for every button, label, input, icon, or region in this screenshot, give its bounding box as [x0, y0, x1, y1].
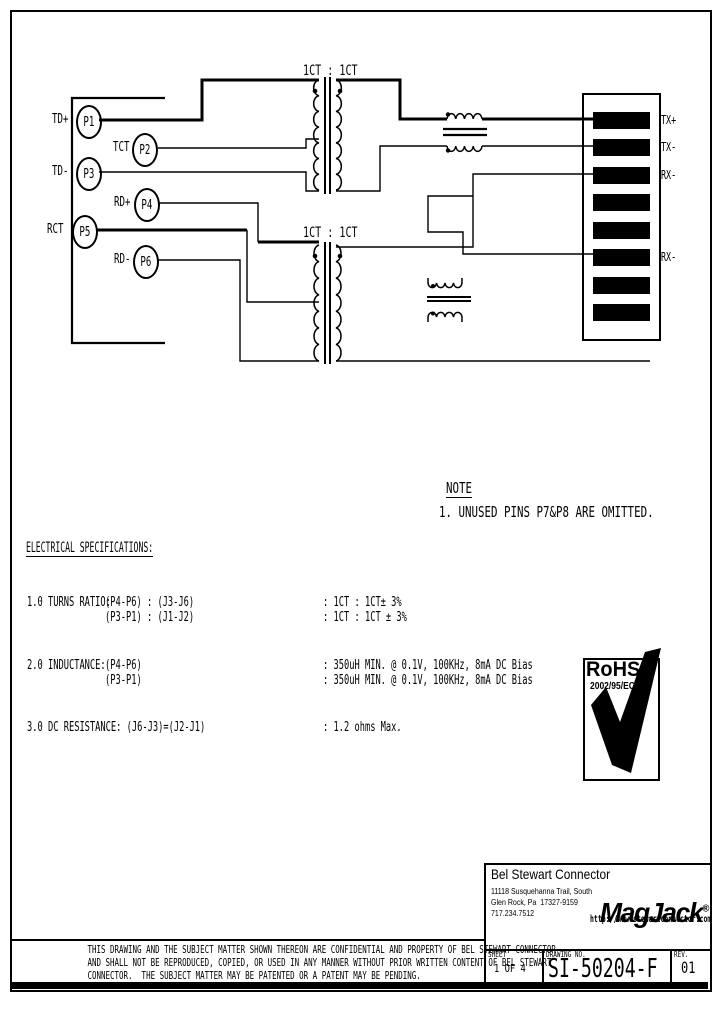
signal-label-rct: RCT	[47, 223, 63, 236]
pin-label-p6: P6	[141, 255, 152, 270]
pin-circle-p3: P3	[76, 157, 102, 191]
pin-label-p3: P3	[84, 167, 95, 182]
connector-pin-label-j6: J6	[637, 250, 649, 264]
signal-label-td-minus: TD-	[52, 165, 68, 178]
signal-label-rd-minus: RD-	[114, 253, 130, 266]
pin-label-p1: P1	[84, 115, 95, 130]
magjack-logo: MagJack®	[576, 871, 708, 955]
note-item-1: 1. UNUSED PINS P7&P8 ARE OMITTED.	[439, 505, 654, 520]
connector-pin-label-j4: J4	[637, 195, 649, 209]
disclaimer-line3: CONNECTOR. THE SUBJECT MATTER MAY BE PAT…	[88, 970, 409, 981]
pin-circle-p2: P2	[132, 133, 158, 167]
connector-pin-label-j8: J8	[637, 305, 649, 319]
drawing-no-value: SI-50204-F	[548, 956, 658, 982]
note-heading: NOTE	[446, 481, 472, 498]
spec-r5-value: : 1.2 ohms Max.	[323, 721, 402, 734]
specs-heading: ELECTRICAL SPECIFICATIONS:	[26, 541, 153, 557]
spec-r3-label: 2.0 INDUCTANCE:	[27, 659, 106, 672]
spec-r3-value: : 350uH MIN. @ 0.1V, 100KHz, 8mA DC Bias	[323, 659, 533, 672]
spec-r1-label: 1.0 TURNS RATIO:	[27, 596, 111, 609]
rohs-directive: 2002/95/EC	[590, 682, 635, 692]
connector-signal-tx-plus: TX+	[661, 114, 676, 126]
spec-r3-pins: (P4-P6)	[105, 659, 142, 672]
pin-circle-p4: P4	[134, 188, 160, 222]
connector-pin-label-j3: J3	[637, 168, 649, 182]
transformer-top-label: 1CT : 1CT	[303, 64, 358, 78]
drawing-sheet: 1CT : 1CT 1CT : 1CT TD+ TCT TD- RD+ RCT …	[0, 0, 720, 1012]
pin-label-p2: P2	[140, 143, 151, 158]
disclaimer-line1: THIS DRAWING AND THE SUBJECT MATTER SHOW…	[88, 944, 409, 955]
signal-label-rd-plus: RD+	[114, 196, 130, 209]
connector-pin-label-j1: J1	[637, 113, 649, 127]
company-phone: 717.234.7512	[491, 910, 534, 918]
transformer-bottom-label: 1CT : 1CT	[303, 226, 358, 240]
pin-circle-p5: P5	[72, 215, 98, 249]
spec-r1-value: : 1CT : 1CT± 3%	[323, 596, 402, 609]
pin-circle-p6: P6	[133, 245, 159, 279]
connector-signal-rx-j3: RX-	[661, 169, 676, 181]
spec-r1-pins: (P4-P6) : (J3-J6)	[105, 596, 194, 609]
spec-r4-pins: (P3-P1)	[105, 674, 142, 687]
spec-r2-value: : 1CT : 1CT ± 3%	[323, 611, 407, 624]
rohs-title: RoHS	[586, 659, 640, 680]
signal-label-tct: TCT	[113, 141, 129, 154]
connector-signal-tx-minus: TX-	[661, 141, 676, 153]
connector-signal-rx-j6: RX-	[661, 251, 676, 263]
pin-label-p5: P5	[80, 225, 91, 240]
connector-pin-label-j5: J5	[637, 223, 649, 237]
pin-circle-p1: P1	[76, 105, 102, 139]
pin-label-p4: P4	[142, 198, 153, 213]
website-url: http://www.stewartconnector.com	[590, 915, 711, 925]
connector-pin-label-j2: J2	[637, 140, 649, 154]
disclaimer-line2: AND SHALL NOT BE REPRODUCED, COPIED, OR …	[88, 957, 409, 968]
connector-pin-label-j7: J7	[637, 278, 649, 292]
company-address-line2: Glen Rock, Pa 17327-9159	[491, 899, 578, 907]
signal-label-td-plus: TD+	[52, 113, 68, 126]
spec-r4-value: : 350uH MIN. @ 0.1V, 100KHz, 8mA DC Bias	[323, 674, 533, 687]
spec-r5-label: 3.0 DC RESISTANCE: (J6-J3)=(J2-J1)	[27, 721, 205, 734]
rev-value: 01	[681, 960, 695, 976]
fields-divider-2	[670, 949, 672, 982]
spec-r2-pins: (P3-P1) : (J1-J2)	[105, 611, 194, 624]
